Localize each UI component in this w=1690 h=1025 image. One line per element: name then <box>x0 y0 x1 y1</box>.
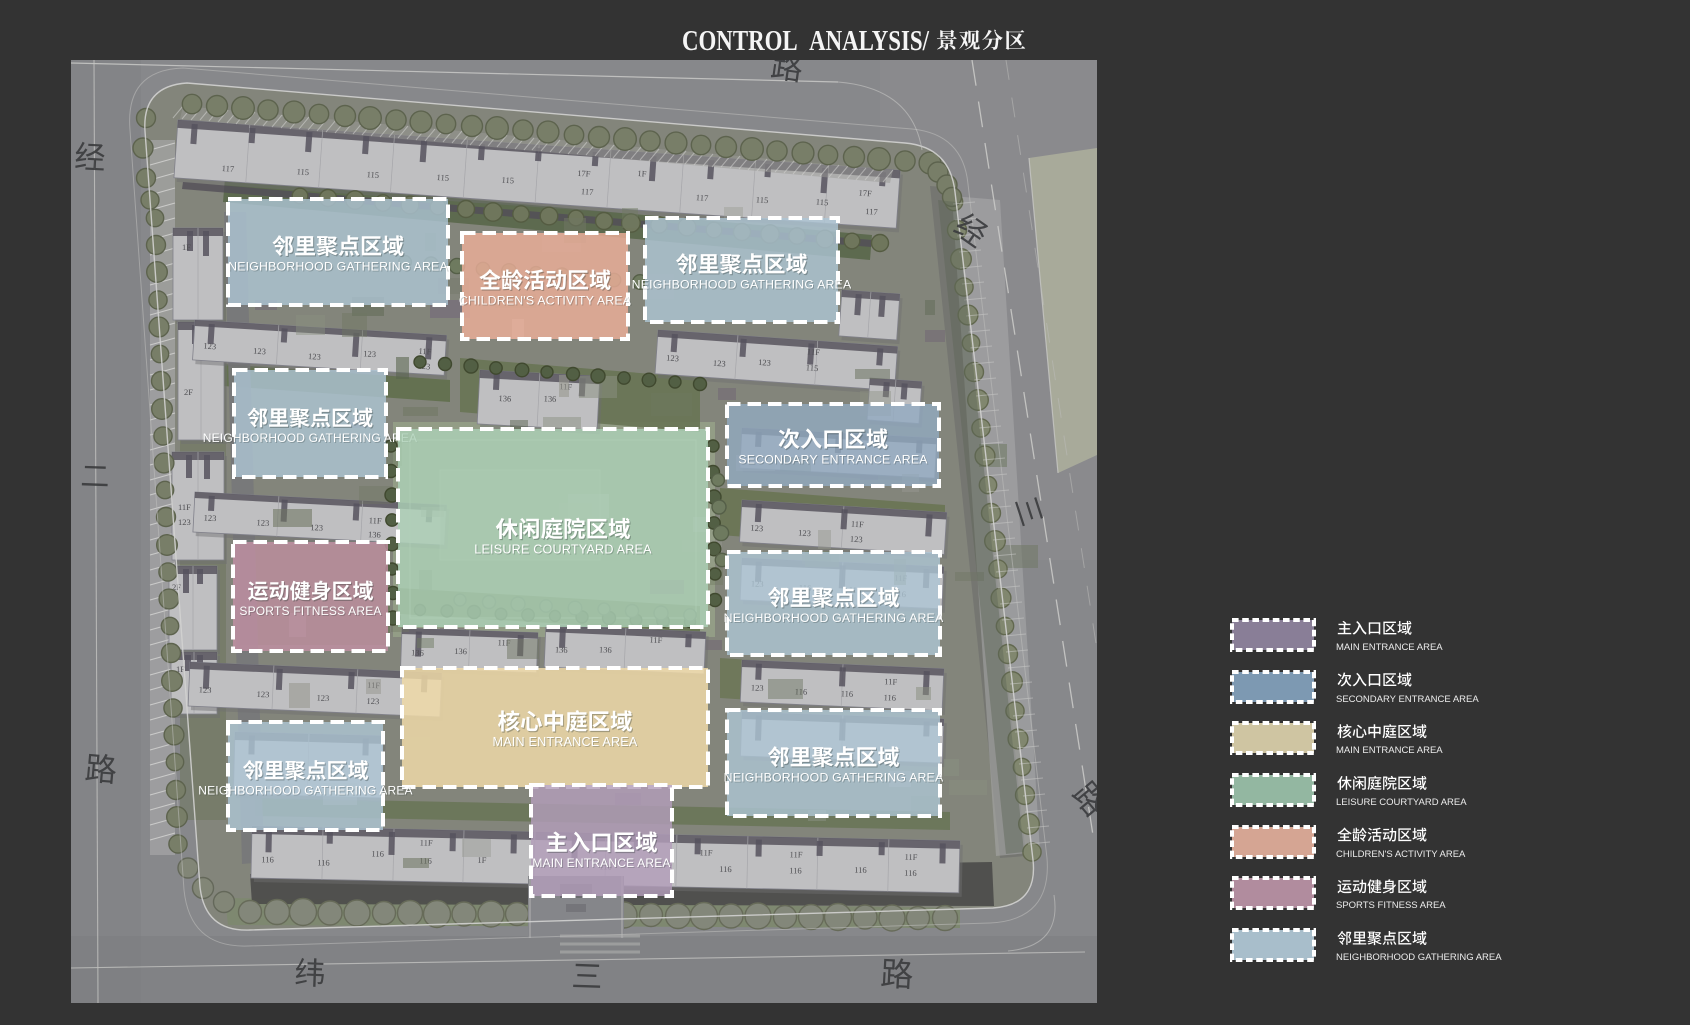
svg-text:123: 123 <box>713 358 726 369</box>
svg-text:NEIGHBORHOOD GATHERING AREA: NEIGHBORHOOD GATHERING AREA <box>1336 952 1502 963</box>
svg-text:SECONDARY ENTRANCE AREA: SECONDARY ENTRANCE AREA <box>738 453 928 467</box>
svg-text:1F: 1F <box>182 242 191 252</box>
svg-text:123: 123 <box>316 693 329 704</box>
svg-text:MAIN ENTRANCE AREA: MAIN ENTRANCE AREA <box>493 735 638 749</box>
svg-text:123: 123 <box>178 517 191 527</box>
svg-text:11F: 11F <box>904 852 917 862</box>
svg-text:123: 123 <box>751 682 764 693</box>
svg-text:123: 123 <box>850 534 863 545</box>
svg-text:2F: 2F <box>184 387 193 397</box>
svg-text:11F: 11F <box>851 519 865 530</box>
svg-text:116: 116 <box>904 868 917 878</box>
svg-text:136: 136 <box>454 646 467 656</box>
svg-text:1F: 1F <box>637 168 647 179</box>
svg-text:11F: 11F <box>178 502 191 512</box>
svg-text:123: 123 <box>310 522 323 533</box>
svg-text:MAIN ENTRANCE AREA: MAIN ENTRANCE AREA <box>532 856 670 870</box>
svg-text:115: 115 <box>806 362 819 373</box>
svg-text:123: 123 <box>256 517 269 528</box>
svg-text:115: 115 <box>436 172 449 183</box>
svg-text:SPORTS FITNESS AREA: SPORTS FITNESS AREA <box>1336 900 1446 911</box>
svg-text:11F: 11F <box>699 847 712 857</box>
svg-text:116: 116 <box>371 849 384 859</box>
svg-text:11F: 11F <box>884 676 898 687</box>
svg-text:11F: 11F <box>418 346 432 357</box>
svg-text:136: 136 <box>543 393 556 404</box>
svg-text:116: 116 <box>854 865 867 875</box>
svg-text:11F: 11F <box>789 849 802 859</box>
svg-text:123: 123 <box>666 353 679 364</box>
svg-text:NEIGHBORHOOD GATHERING AREA: NEIGHBORHOOD GATHERING AREA <box>632 278 852 292</box>
svg-text:117: 117 <box>696 192 709 203</box>
svg-text:123: 123 <box>798 527 811 538</box>
svg-text:123: 123 <box>199 684 212 695</box>
svg-text:116: 116 <box>789 865 802 875</box>
svg-text:NEIGHBORHOOD GATHERING AREA: NEIGHBORHOOD GATHERING AREA <box>724 611 944 625</box>
svg-text:NEIGHBORHOOD GATHERING AREA: NEIGHBORHOOD GATHERING AREA <box>228 260 448 274</box>
svg-text:SECONDARY ENTRANCE AREA: SECONDARY ENTRANCE AREA <box>1336 694 1479 705</box>
svg-text:17F: 17F <box>577 168 591 179</box>
svg-text:17F: 17F <box>858 188 872 199</box>
svg-text:116: 116 <box>719 864 732 874</box>
svg-text:11F: 11F <box>369 515 383 526</box>
svg-text:115: 115 <box>756 194 769 205</box>
svg-text:117: 117 <box>865 206 878 217</box>
svg-text:11F: 11F <box>807 346 821 357</box>
svg-text:NEIGHBORHOOD GATHERING AREA: NEIGHBORHOOD GATHERING AREA <box>198 784 413 798</box>
svg-text:123: 123 <box>758 357 771 368</box>
svg-text:116: 116 <box>841 688 854 699</box>
svg-text:SPORTS FITNESS AREA: SPORTS FITNESS AREA <box>239 604 381 618</box>
svg-text:123: 123 <box>256 689 269 700</box>
svg-text:115: 115 <box>816 197 829 208</box>
svg-text:116: 116 <box>317 857 330 867</box>
svg-text:MAIN ENTRANCE AREA: MAIN ENTRANCE AREA <box>1336 745 1443 756</box>
svg-text:115: 115 <box>366 169 379 180</box>
svg-text:115: 115 <box>501 175 514 186</box>
svg-text:123: 123 <box>203 512 216 523</box>
svg-text:LEISURE COURTYARD AREA: LEISURE COURTYARD AREA <box>1336 797 1467 808</box>
svg-text:123: 123 <box>308 351 321 362</box>
svg-text:123: 123 <box>363 348 376 359</box>
svg-text:136: 136 <box>498 393 511 404</box>
svg-text:LEISURE COURTYARD AREA: LEISURE COURTYARD AREA <box>474 543 652 557</box>
svg-text:CHILDREN'S ACTIVITY AREA: CHILDREN'S ACTIVITY AREA <box>1336 849 1466 860</box>
svg-text:117: 117 <box>581 186 594 197</box>
svg-text:123: 123 <box>750 523 763 534</box>
svg-text:11F: 11F <box>649 635 663 646</box>
svg-text:115: 115 <box>296 166 309 177</box>
svg-text:CONTROL ANALYSIS/: CONTROL ANALYSIS/ <box>682 26 930 57</box>
svg-text:116: 116 <box>883 692 896 703</box>
svg-text:MAIN ENTRANCE AREA: MAIN ENTRANCE AREA <box>1336 642 1443 653</box>
svg-text:123: 123 <box>253 346 266 357</box>
svg-text:123: 123 <box>203 341 216 352</box>
svg-text:NEIGHBORHOOD GATHERING AREA: NEIGHBORHOOD GATHERING AREA <box>203 431 418 445</box>
svg-text:136: 136 <box>599 644 612 655</box>
svg-text:123: 123 <box>366 696 379 707</box>
svg-text:117: 117 <box>221 163 234 174</box>
svg-text:NEIGHBORHOOD GATHERING AREA: NEIGHBORHOOD GATHERING AREA <box>724 771 944 785</box>
svg-text:11F: 11F <box>420 838 433 848</box>
svg-text:136: 136 <box>411 647 424 657</box>
svg-text:CHILDREN'S ACTIVITY AREA: CHILDREN'S ACTIVITY AREA <box>459 294 632 308</box>
svg-text:136: 136 <box>555 644 568 655</box>
svg-text:116: 116 <box>261 854 274 864</box>
svg-text:136: 136 <box>368 529 381 540</box>
